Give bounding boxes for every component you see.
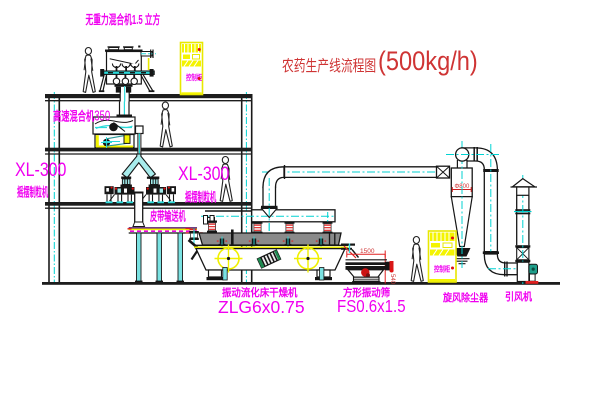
svg-text:540: 540	[389, 274, 395, 285]
svg-text:(500kg/h): (500kg/h)	[378, 47, 478, 77]
svg-text:引风机: 引风机	[505, 289, 532, 303]
svg-text:1500: 1500	[360, 248, 375, 255]
svg-text:摇摆制粒机: 摇摆制粒机	[17, 184, 48, 200]
svg-text:控制柜: 控制柜	[186, 72, 203, 82]
svg-text:旋风除尘器: 旋风除尘器	[442, 290, 488, 304]
svg-text:控制柜: 控制柜	[434, 263, 451, 273]
svg-text:ZLG6x0.75: ZLG6x0.75	[218, 297, 305, 317]
svg-text:无重力混合机1.5 立方: 无重力混合机1.5 立方	[85, 12, 160, 28]
svg-text:摇摆制粒机: 摇摆制粒机	[185, 189, 216, 205]
svg-text:皮带输送机: 皮带输送机	[149, 208, 186, 224]
svg-text:高速混合机350: 高速混合机350	[53, 108, 110, 125]
svg-text:XL-300: XL-300	[178, 163, 230, 185]
svg-text:FS0.6x1.5: FS0.6x1.5	[337, 297, 406, 316]
svg-text:农药生产线流程图: 农药生产线流程图	[282, 57, 376, 74]
svg-text:XL-300: XL-300	[15, 159, 67, 181]
